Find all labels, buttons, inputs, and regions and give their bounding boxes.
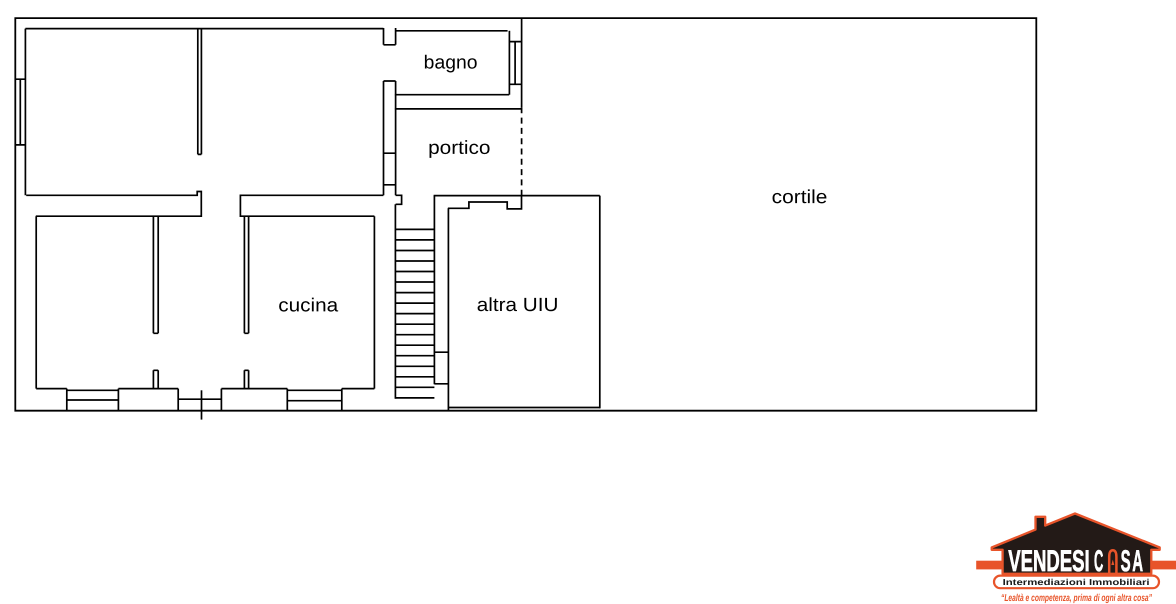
svg-text:bagno: bagno bbox=[424, 52, 478, 73]
svg-text:altra UIU: altra UIU bbox=[477, 295, 559, 316]
svg-text:Intermediazioni Immobiliari: Intermediazioni Immobiliari bbox=[1003, 577, 1150, 587]
svg-text:S: S bbox=[1121, 545, 1131, 578]
svg-text:cortile: cortile bbox=[772, 187, 828, 208]
svg-text:“Lealtà e competenza, prima di: “Lealtà e competenza, prima di ogni altr… bbox=[1001, 593, 1152, 604]
svg-text:cucina: cucina bbox=[278, 295, 338, 316]
svg-text:portico: portico bbox=[428, 138, 490, 159]
svg-text:VENDESI: VENDESI bbox=[1008, 545, 1089, 578]
svg-text:A: A bbox=[1132, 545, 1143, 578]
svg-text:C: C bbox=[1094, 545, 1103, 578]
